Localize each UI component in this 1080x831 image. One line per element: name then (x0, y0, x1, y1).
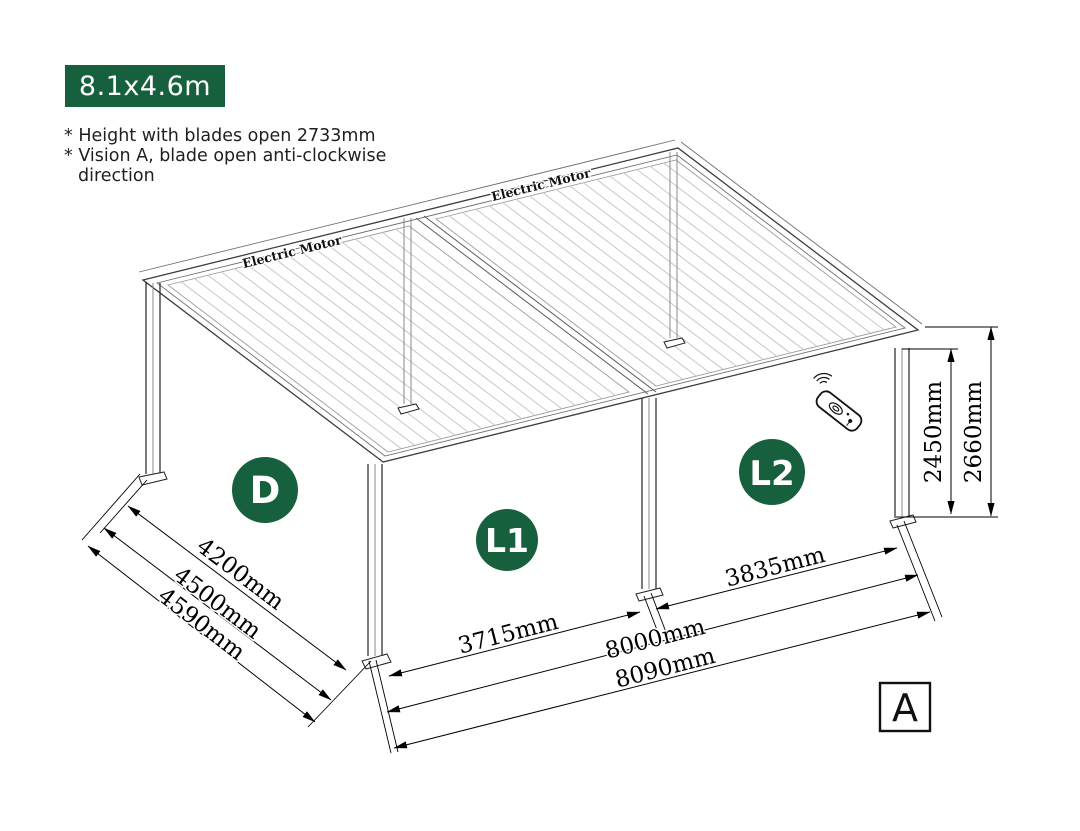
svg-text:2450mm: 2450mm (921, 381, 947, 483)
zone-badge-front-right: L2 (739, 439, 805, 505)
dimension-front-right-opening: 3835mm (656, 542, 897, 609)
view-a-marker: A (880, 683, 930, 731)
remote-control-icon (802, 368, 873, 433)
pergola-dimension-sheet: 8.1x4.6m * Height with blades open 2733m… (0, 0, 1080, 831)
svg-text:L2: L2 (749, 454, 794, 494)
svg-text:L1: L1 (485, 521, 529, 560)
witness-lines (82, 327, 998, 753)
svg-text:D: D (250, 469, 281, 512)
svg-text:3835mm: 3835mm (723, 542, 829, 593)
post-foot (636, 588, 663, 601)
svg-text:A: A (892, 686, 918, 730)
dimension-post-height: 2450mm (921, 349, 951, 514)
dimension-side-total: 4590mm (88, 546, 315, 722)
pergola-line-drawing: Electric Motor Electric Motor 4200mm 450… (0, 0, 1080, 831)
post-foot (398, 404, 419, 414)
zone-badge-side: D (232, 457, 298, 523)
svg-text:2660mm: 2660mm (961, 381, 987, 483)
post-foot (139, 472, 167, 485)
wireless-signal-arcs (814, 368, 832, 386)
svg-text:3715mm: 3715mm (456, 609, 562, 660)
dimension-total-height: 2660mm (961, 327, 991, 516)
zone-badge-front-left: L1 (476, 509, 538, 571)
